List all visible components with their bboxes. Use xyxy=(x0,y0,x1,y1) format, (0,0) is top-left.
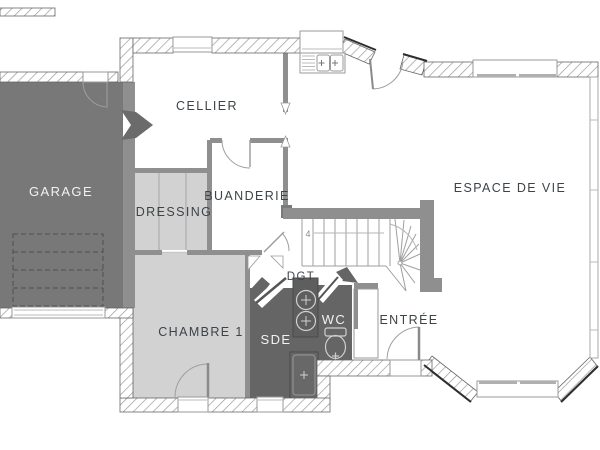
garage-door-opening xyxy=(12,307,105,318)
wall-garage-bottom-left xyxy=(0,308,12,318)
wall-garage-top-left xyxy=(0,72,83,82)
buanderie-door-arc xyxy=(282,233,289,251)
wall-chambre-east xyxy=(245,253,250,398)
wall-chambre-top-right xyxy=(187,250,248,255)
garage-side-door-opening xyxy=(83,72,108,82)
wall-top-angled-2 xyxy=(400,55,426,75)
wall-dressing-top xyxy=(135,168,212,173)
wall-bottom-1 xyxy=(120,398,178,412)
wall-bottom-entrance-left xyxy=(317,360,390,376)
label-chambre1: CHAMBRE 1 xyxy=(158,325,244,339)
label-entree: ENTRÉE xyxy=(379,312,438,327)
closet-left-bar xyxy=(354,289,358,329)
label-espace-de-vie: ESPACE DE VIE xyxy=(454,181,566,195)
wall-bay-right xyxy=(554,357,598,402)
label-wc: WC xyxy=(322,312,346,327)
wall-west-connector xyxy=(120,38,133,82)
wall-east-thin xyxy=(590,77,598,358)
staircase: 4 xyxy=(302,219,420,291)
wall-edges xyxy=(344,37,598,402)
wall-bottom-2 xyxy=(208,398,257,412)
window-kitchen xyxy=(300,31,343,53)
shower xyxy=(290,352,318,398)
label-cellier: CELLIER xyxy=(176,99,238,113)
entry-door-opening xyxy=(390,360,421,376)
label-sde: SDE xyxy=(261,332,292,347)
closet-top-bar xyxy=(354,283,378,289)
wall-stair-block-foot xyxy=(420,278,442,292)
window-sills xyxy=(477,76,556,383)
wall-top-left-stub xyxy=(0,8,55,16)
window-sde xyxy=(257,397,283,412)
label-dressing: DRESSING xyxy=(136,205,213,219)
wall-cellier-buanderie-left xyxy=(210,138,222,143)
wall-step xyxy=(317,376,330,400)
double-washbasin xyxy=(293,278,318,337)
stair-step-number: 4 xyxy=(305,229,310,239)
wall-bottom-3 xyxy=(283,398,330,412)
wall-stair-top xyxy=(283,208,420,219)
wall-garage-cellier-upper xyxy=(123,82,135,113)
floor-plan-page: 4 GARAGE CELLIER DRESSING BUANDERIE ESPA… xyxy=(0,0,600,450)
floor-plan: 4 GARAGE CELLIER DRESSING BUANDERIE ESPA… xyxy=(0,0,600,450)
window-top-1 xyxy=(173,37,212,52)
wall-garage-top-right xyxy=(108,72,118,82)
passage-arrow-icon xyxy=(121,110,153,140)
wall-top-4 xyxy=(557,62,598,77)
terrace-door-arc xyxy=(373,62,403,89)
wall-chambre-top-left xyxy=(133,250,162,255)
wall-top-3 xyxy=(424,62,473,77)
wall-cellier-buanderie-right xyxy=(250,138,288,143)
cellier-door-arc xyxy=(222,140,250,168)
wall-garage-chambre xyxy=(123,138,135,308)
window-chambre xyxy=(178,397,208,412)
label-garage: GARAGE xyxy=(29,184,93,199)
kitchen-sink xyxy=(300,53,345,73)
wall-top-2 xyxy=(212,38,300,53)
wall-garage-bottom-right xyxy=(105,308,133,318)
wall-west xyxy=(120,308,133,398)
wall-top-1 xyxy=(133,38,173,53)
label-buanderie: BUANDERIE xyxy=(204,189,290,203)
label-dgt: DGT xyxy=(287,271,315,283)
entry-door-arc xyxy=(387,327,419,359)
